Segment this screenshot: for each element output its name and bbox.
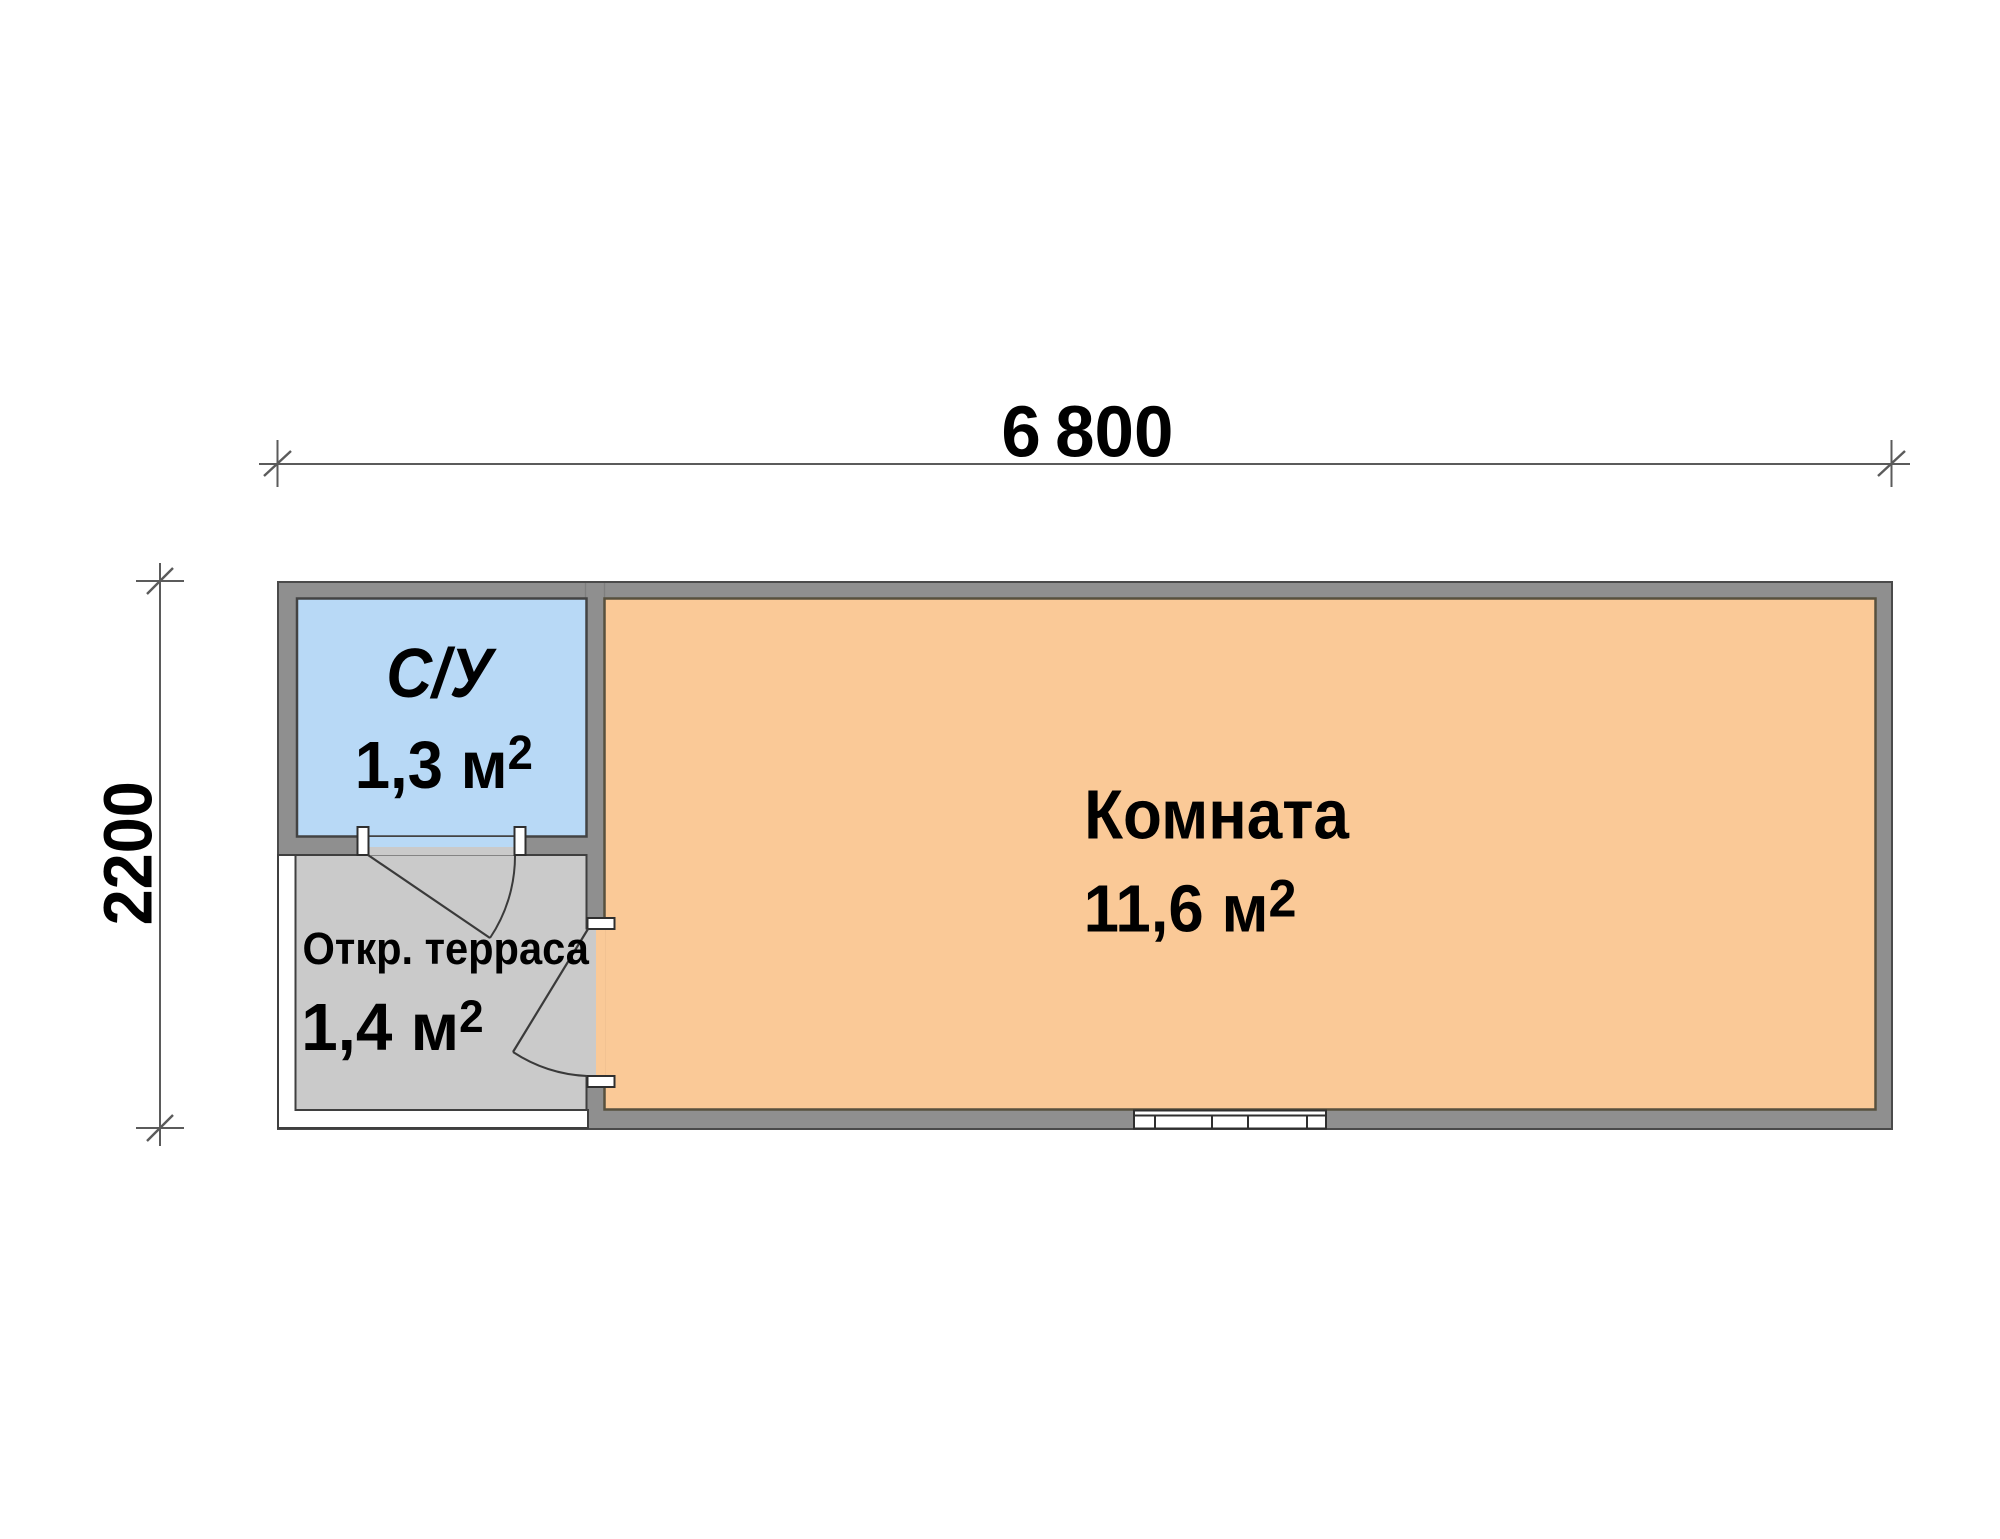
svg-text:Откр. терраса: Откр. терраса: [303, 925, 590, 975]
svg-text:С/У: С/У: [386, 635, 497, 713]
svg-text:1,3 м2: 1,3 м2: [355, 726, 533, 802]
svg-text:2200: 2200: [90, 781, 167, 925]
svg-text:6 800: 6 800: [1001, 392, 1173, 473]
svg-text:Комната: Комната: [1084, 776, 1350, 854]
svg-text:11,6 м2: 11,6 м2: [1084, 868, 1297, 946]
svg-text:1,4 м2: 1,4 м2: [301, 990, 483, 1065]
